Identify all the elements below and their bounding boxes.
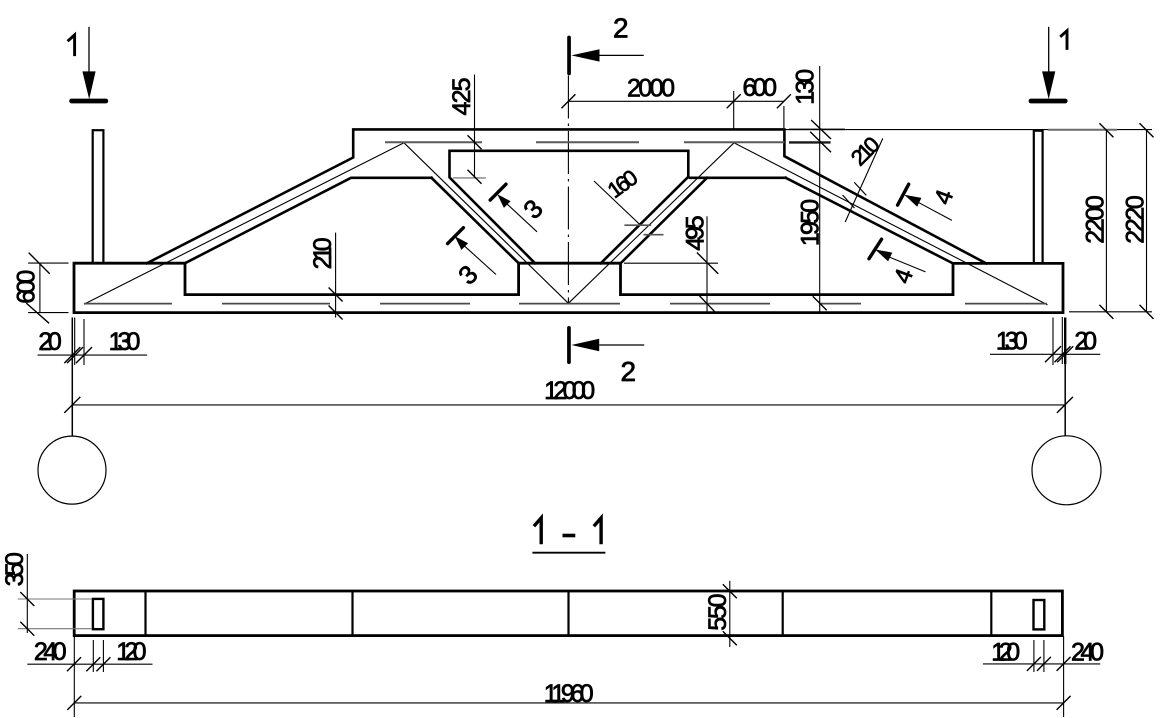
svg-text:120: 120 [991, 639, 1020, 667]
svg-text:11960: 11960 [544, 680, 594, 708]
svg-text:1950: 1950 [797, 199, 825, 246]
svg-text:2: 2 [613, 12, 629, 43]
svg-text:2: 2 [621, 356, 637, 387]
svg-text:120: 120 [116, 638, 146, 666]
svg-text:550: 550 [704, 594, 732, 631]
svg-text:210: 210 [309, 237, 337, 269]
svg-text:350: 350 [1, 552, 29, 586]
svg-text:130: 130 [996, 327, 1028, 355]
svg-text:20: 20 [38, 328, 61, 356]
svg-text:425: 425 [448, 77, 476, 115]
svg-text:600: 600 [12, 270, 40, 304]
svg-text:2200: 2200 [1082, 195, 1110, 244]
svg-text:2220: 2220 [1122, 195, 1150, 244]
svg-text:2000: 2000 [627, 74, 675, 102]
svg-text:20: 20 [1074, 327, 1097, 355]
svg-text:495: 495 [681, 215, 709, 250]
svg-text:240: 240 [1071, 639, 1104, 667]
svg-text:130: 130 [109, 328, 141, 356]
svg-text:600: 600 [743, 74, 778, 102]
svg-text:130: 130 [792, 69, 820, 105]
svg-text:240: 240 [34, 638, 67, 666]
svg-text:12000: 12000 [544, 377, 595, 405]
